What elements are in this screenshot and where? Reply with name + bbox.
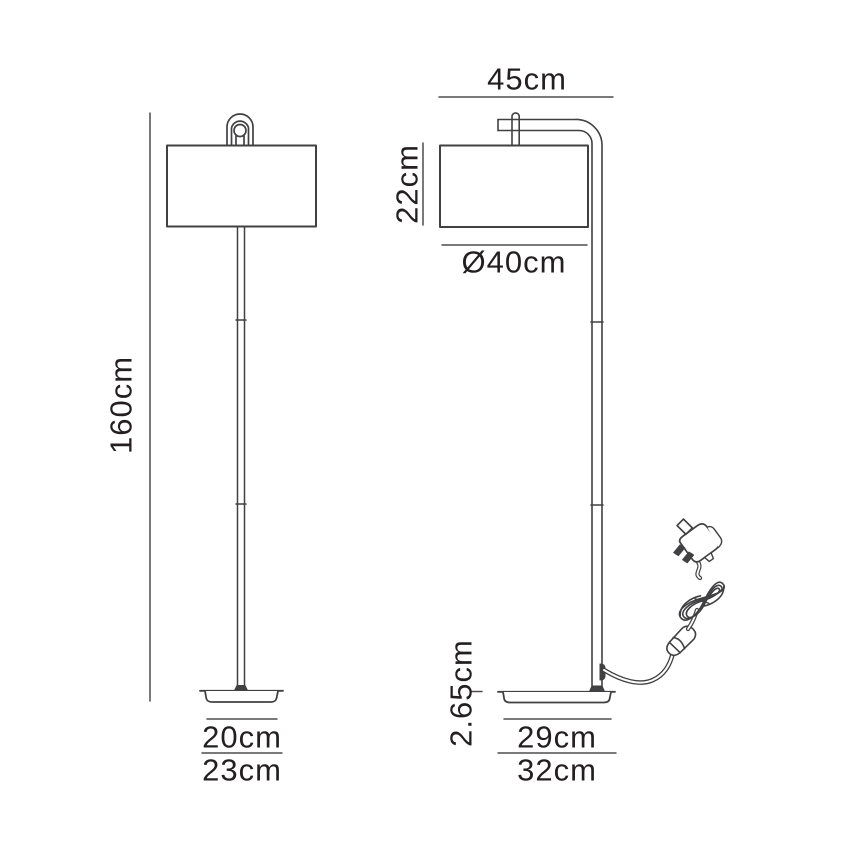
side-base [498,692,615,703]
side-base-top-depth-label: 29cm [517,722,597,753]
cable-coil [676,578,729,625]
inline-switch [663,623,698,659]
side-view-lamp [440,113,615,703]
front-height-label: 160cm [106,356,137,454]
front-base-top-width-label: 20cm [202,722,282,753]
finial-loop-icon [227,114,253,146]
uk-plug-icon [661,508,728,575]
power-cord-and-plug [604,508,728,683]
front-view-lamp [167,114,316,702]
side-base-depth-label: 32cm [517,755,597,786]
side-pole-foot [590,686,605,692]
side-shade-height-label: 22cm [392,144,423,224]
front-shade [167,146,316,227]
side-shade [440,146,588,228]
shade-hanger-pin [512,113,519,145]
front-pole [236,227,246,687]
side-base-height-label: 2.65cm [446,639,477,747]
power-cord [604,652,673,683]
front-base-width-label: 23cm [202,755,282,786]
lamp-dimension-diagram: 160cm 20cm 23cm 45cm 22cm Ø40cm 2.65cm 2… [0,0,850,850]
side-shade-diameter-label: Ø40cm [462,247,567,278]
front-pole-foot [235,686,248,691]
side-depth-label: 45cm [487,64,567,95]
front-base [200,691,283,702]
